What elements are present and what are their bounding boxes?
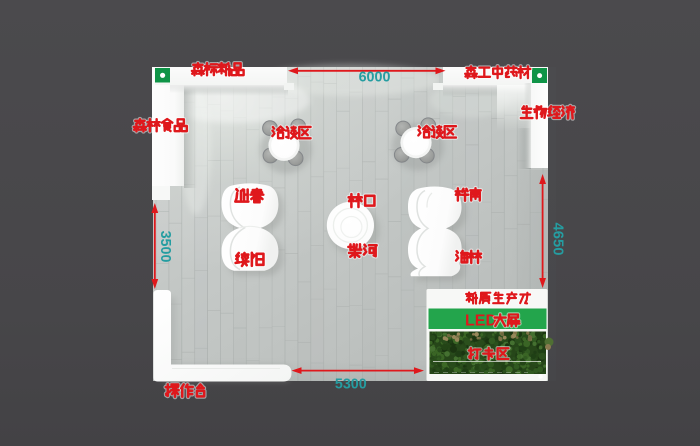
svg-text:6000: 6000: [359, 70, 391, 86]
svg-text:4650: 4650: [550, 223, 566, 256]
svg-text:LED: LED: [465, 313, 497, 330]
svg-text:5300: 5300: [335, 377, 367, 393]
svg-text:3500: 3500: [157, 231, 173, 263]
